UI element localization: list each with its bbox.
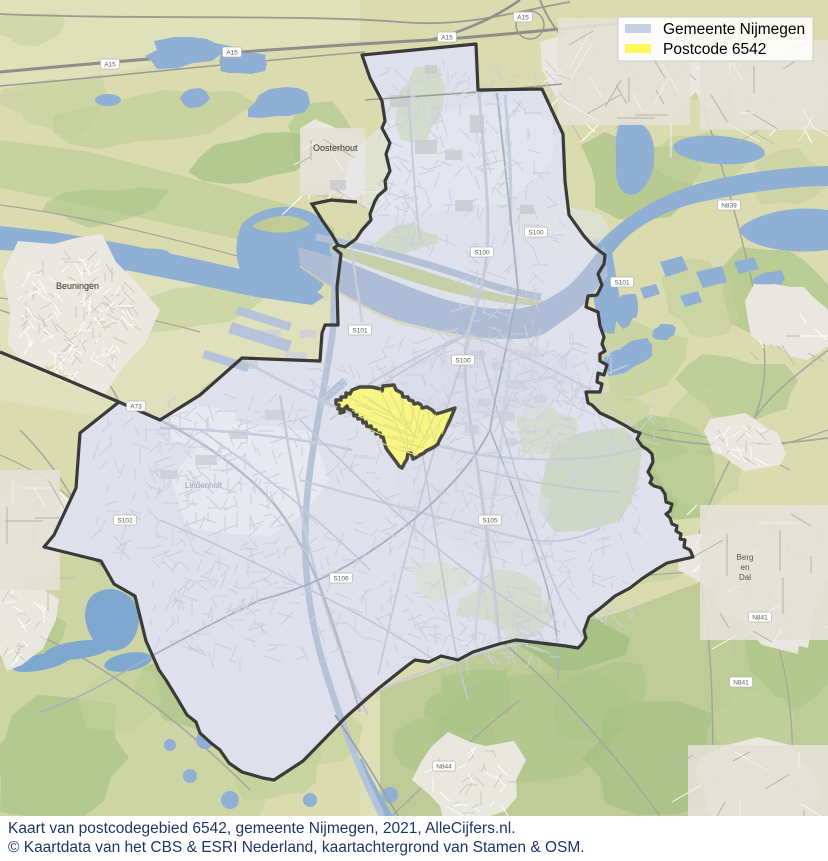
svg-text:A15: A15 — [104, 62, 116, 69]
svg-text:Gemeente Nijmegen: Gemeente Nijmegen — [663, 21, 805, 38]
svg-text:Postcode 6542: Postcode 6542 — [663, 41, 766, 58]
svg-text:A15: A15 — [226, 50, 238, 57]
svg-text:Dal: Dal — [739, 573, 751, 582]
svg-text:© Kaartdata van het CBS & ESRI: © Kaartdata van het CBS & ESRI Nederland… — [8, 839, 585, 856]
svg-text:S100: S100 — [474, 250, 490, 257]
svg-text:A73: A73 — [130, 404, 142, 411]
svg-text:A15: A15 — [517, 15, 529, 22]
svg-text:S101: S101 — [614, 280, 630, 287]
svg-text:S100: S100 — [455, 358, 471, 365]
svg-text:Berg: Berg — [737, 553, 754, 562]
svg-text:Lindenholt: Lindenholt — [185, 481, 223, 490]
svg-text:S101: S101 — [352, 328, 368, 335]
svg-text:Kaart van postcodegebied 6542,: Kaart van postcodegebied 6542, gemeente … — [8, 820, 516, 837]
svg-text:N841: N841 — [752, 615, 768, 622]
svg-text:S100: S100 — [528, 230, 544, 237]
svg-text:N839: N839 — [721, 203, 737, 210]
svg-text:A15: A15 — [441, 35, 453, 42]
svg-text:N844: N844 — [436, 764, 452, 771]
svg-text:Beuningen: Beuningen — [56, 281, 99, 291]
svg-text:Oosterhout: Oosterhout — [313, 143, 358, 153]
svg-text:en: en — [741, 563, 750, 572]
svg-text:S105: S105 — [482, 518, 498, 525]
svg-text:S106: S106 — [333, 576, 349, 583]
svg-text:N841: N841 — [733, 680, 749, 687]
svg-text:S102: S102 — [117, 518, 133, 525]
